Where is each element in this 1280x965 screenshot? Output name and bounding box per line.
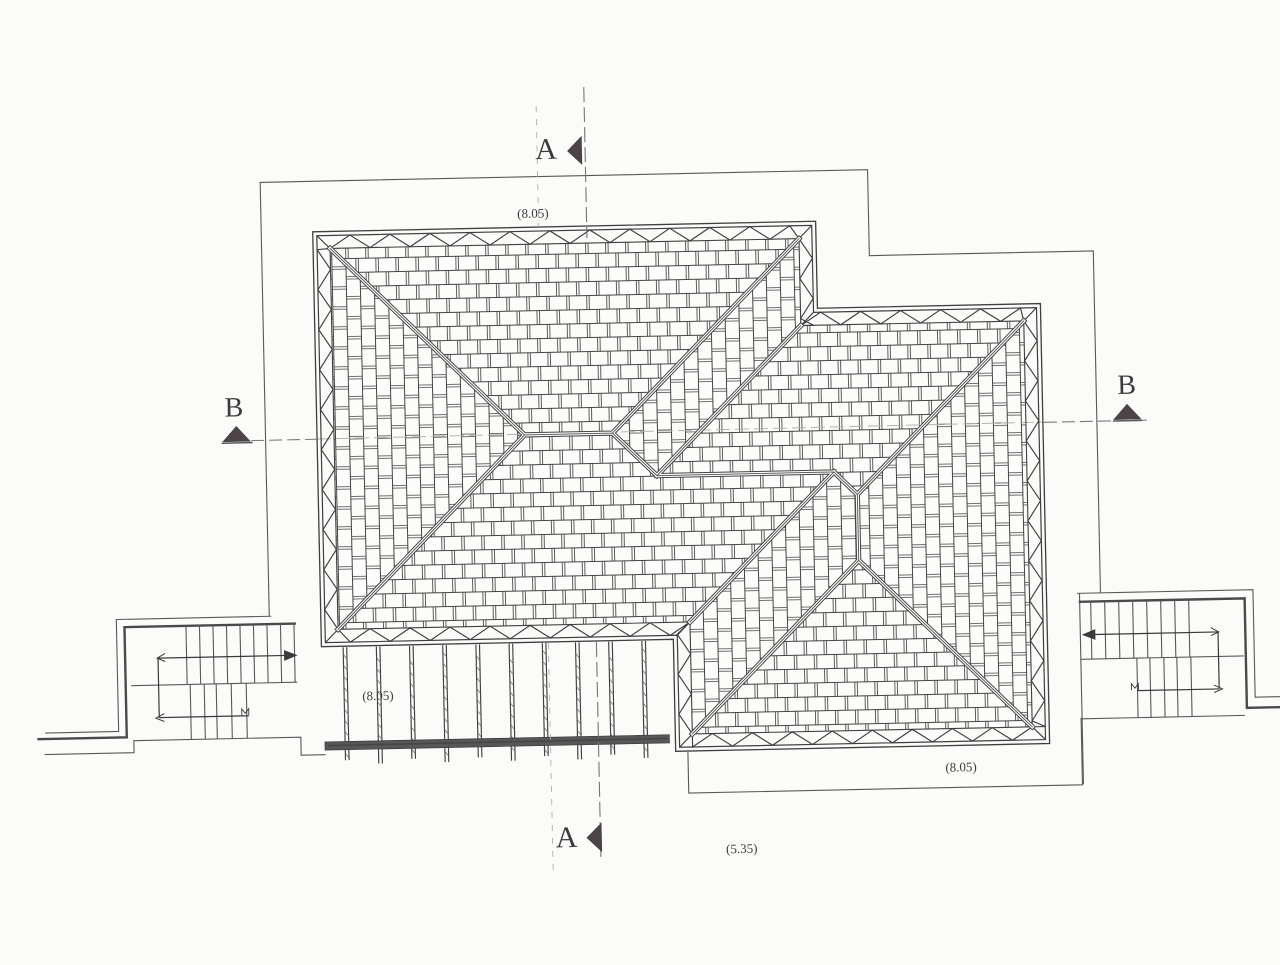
svg-text:(8.05): (8.05) — [362, 688, 394, 704]
svg-text:B: B — [1117, 370, 1136, 401]
svg-text:(8.05): (8.05) — [517, 205, 549, 221]
svg-text:(5.35): (5.35) — [726, 841, 758, 857]
svg-text:A: A — [555, 821, 578, 854]
svg-text:A: A — [535, 133, 558, 166]
svg-text:(8.05): (8.05) — [945, 759, 977, 775]
svg-text:B: B — [224, 392, 243, 423]
